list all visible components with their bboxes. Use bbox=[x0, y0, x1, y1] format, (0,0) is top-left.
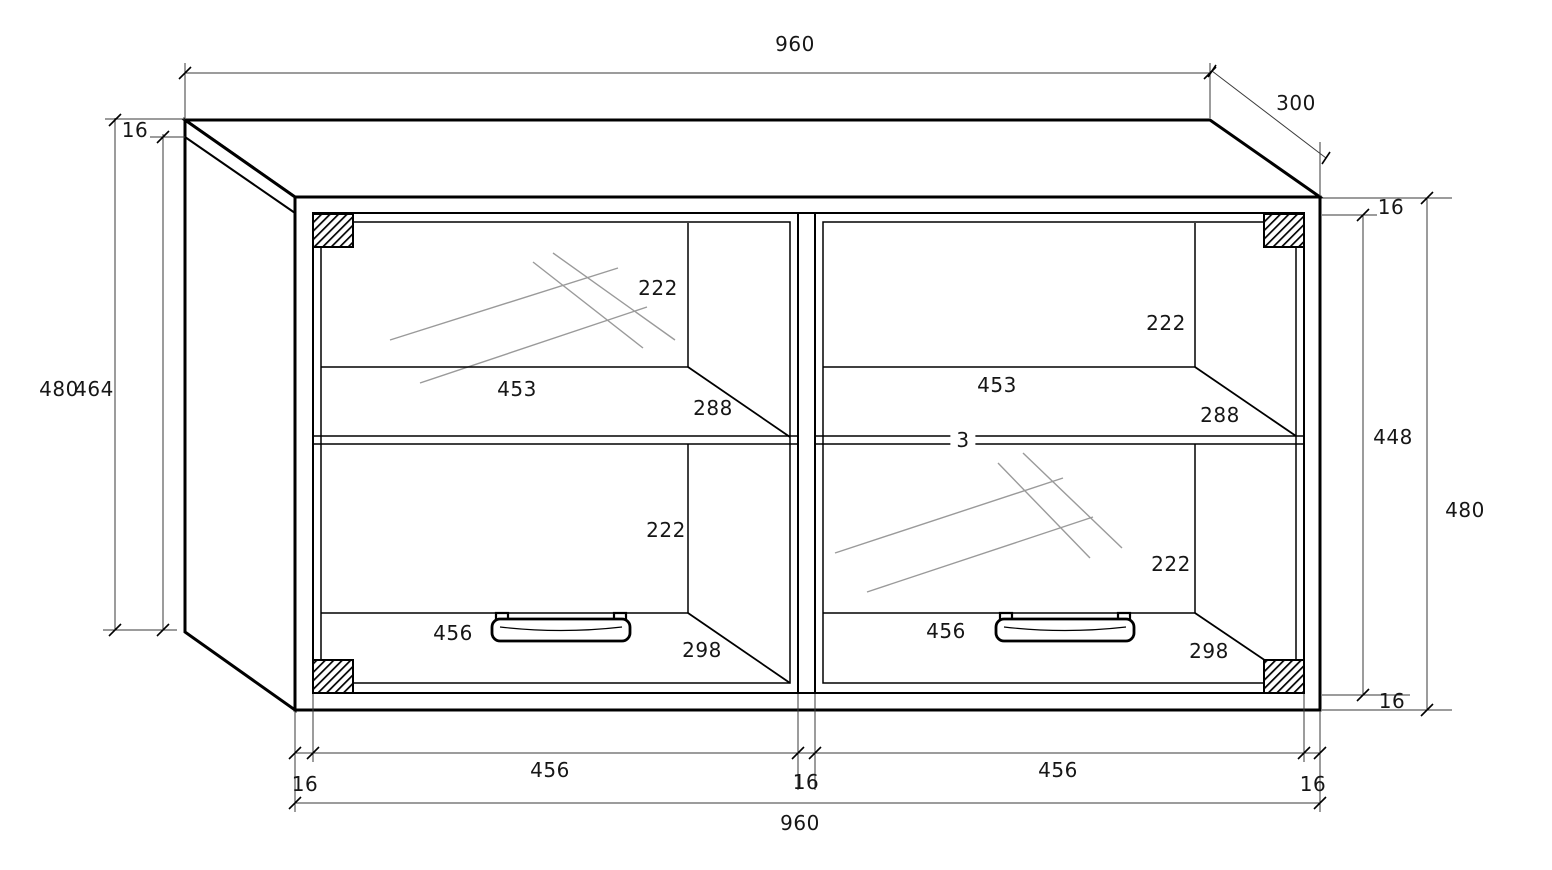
dim-label-shelf-thickness-3: 3 bbox=[950, 428, 975, 452]
dim-label-bottom-width: 960 bbox=[780, 811, 820, 835]
mount-block-top-right bbox=[1264, 214, 1304, 247]
dim-label-bottom-right-16b: 16 bbox=[1300, 772, 1326, 796]
dim-label-left-shelf-453: 453 bbox=[497, 377, 537, 401]
dim-label-bottom-mid-16: 16 bbox=[793, 770, 819, 794]
cabinet-line-drawing bbox=[0, 0, 1552, 870]
mount-block-top-left bbox=[313, 214, 353, 247]
dim-label-right-480: 480 bbox=[1445, 498, 1485, 522]
dim-label-depth: 300 bbox=[1276, 91, 1316, 115]
dim-label-right-shelf-288: 288 bbox=[1200, 403, 1240, 427]
dim-label-bottom-left-456: 456 bbox=[530, 758, 570, 782]
dim-label-left-floor-298: 298 bbox=[682, 638, 722, 662]
dim-label-right-door-456: 456 bbox=[926, 619, 966, 643]
mount-block-bottom-right bbox=[1264, 660, 1304, 693]
dim-label-left-door-456: 456 bbox=[433, 621, 473, 645]
dim-label-bottom-right-16: 16 bbox=[1379, 689, 1405, 713]
dim-label-right-lower-222: 222 bbox=[1151, 552, 1191, 576]
dim-label-left-upper-222: 222 bbox=[638, 276, 678, 300]
technical-drawing-canvas: 960 300 16 480 464 16 448 480 16 222 453… bbox=[0, 0, 1552, 870]
dim-label-right-shelf-453: 453 bbox=[977, 373, 1017, 397]
dim-label-left-464: 464 bbox=[74, 377, 114, 401]
dim-label-right-448: 448 bbox=[1373, 425, 1413, 449]
dim-label-right-upper-222: 222 bbox=[1146, 311, 1186, 335]
dim-label-left-480: 480 bbox=[39, 377, 79, 401]
cabinet-left-face bbox=[185, 120, 295, 710]
dim-label-top-left-16: 16 bbox=[122, 118, 148, 142]
dim-label-right-floor-298: 298 bbox=[1189, 639, 1229, 663]
dim-label-top-width: 960 bbox=[775, 32, 815, 56]
cabinet-top-face bbox=[185, 120, 1320, 197]
dim-label-left-lower-222: 222 bbox=[646, 518, 686, 542]
mount-block-bottom-left bbox=[313, 660, 353, 693]
dim-label-top-right-16: 16 bbox=[1378, 195, 1404, 219]
dim-label-bottom-left-16: 16 bbox=[292, 772, 318, 796]
dim-label-left-shelf-288: 288 bbox=[693, 396, 733, 420]
dim-label-bottom-right-456: 456 bbox=[1038, 758, 1078, 782]
